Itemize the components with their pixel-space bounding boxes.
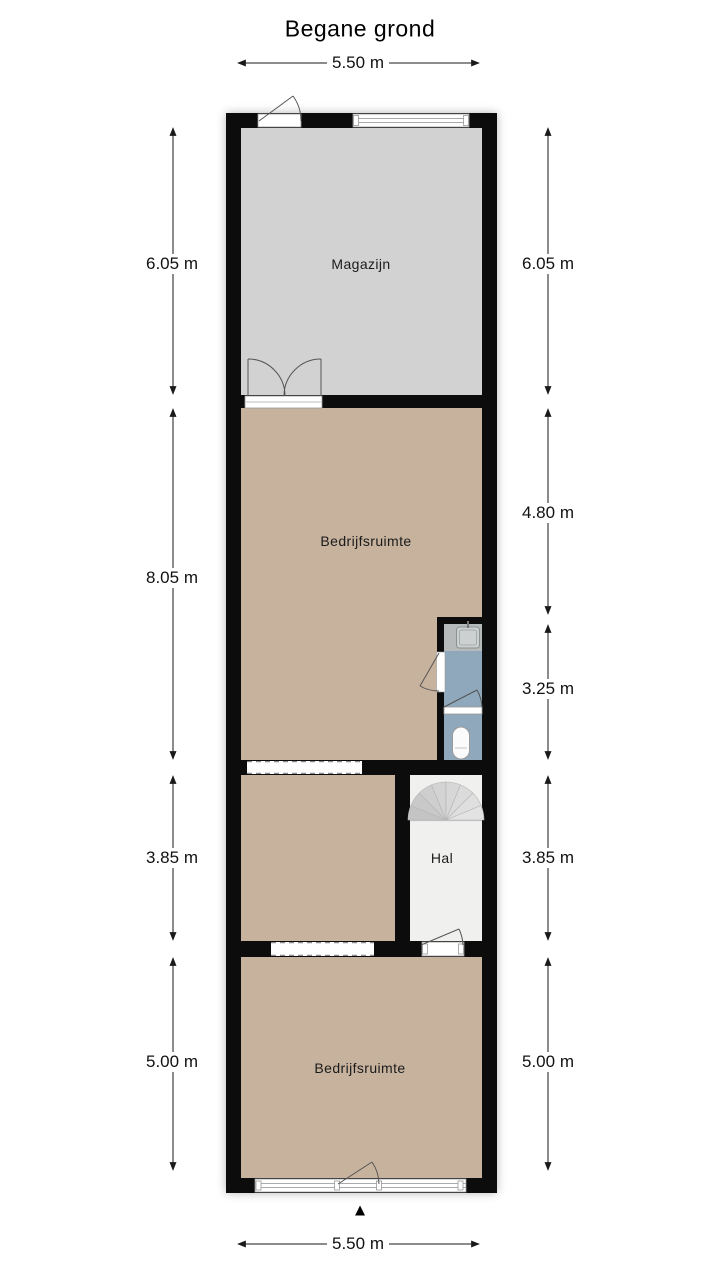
dim-label-left-3: 3.85 m (141, 848, 203, 868)
dim-label-bottom: 5.50 m (327, 1234, 389, 1254)
dim-label-left-1: 6.05 m (141, 254, 203, 274)
room-label-bedrijfsruimte-top: Bedrijfsruimte (320, 533, 411, 549)
dim-label-right-4: 3.85 m (517, 848, 579, 868)
dim-label-top: 5.50 m (327, 53, 389, 73)
dim-label-right-5: 5.00 m (517, 1052, 579, 1072)
room-middle (241, 775, 395, 941)
room-label-hal: Hal (431, 850, 453, 866)
dim-label-right-2: 4.80 m (517, 503, 579, 523)
room-label-bedrijfsruimte-bottom: Bedrijfsruimte (314, 1060, 405, 1076)
room-label-magazijn: Magazijn (331, 256, 390, 272)
dim-label-right-3: 3.25 m (517, 679, 579, 699)
dim-label-left-2: 8.05 m (141, 568, 203, 588)
bathroom-toilet-floor (444, 714, 482, 760)
north-arrow-icon: ▲ (352, 1202, 369, 1219)
bathroom-counter (444, 624, 482, 651)
dim-label-right-1: 6.05 m (517, 254, 579, 274)
dim-label-left-4: 5.00 m (141, 1052, 203, 1072)
page-title: Begane grond (285, 16, 436, 43)
bathroom-shower-floor (444, 651, 482, 707)
floor-plan-page: Begane grond (0, 0, 720, 1280)
